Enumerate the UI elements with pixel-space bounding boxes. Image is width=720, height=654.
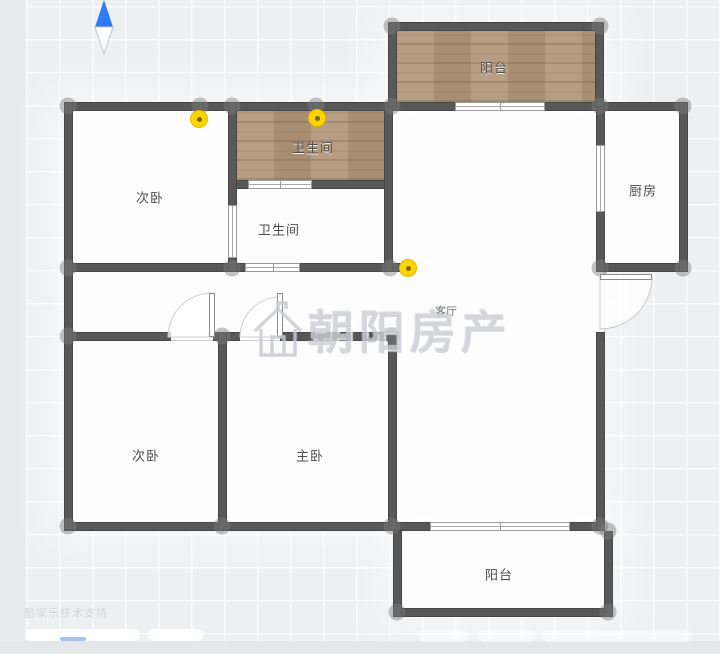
window-kitchen [596, 145, 605, 212]
bottom-panel-strip [0, 641, 720, 654]
wall-balcony-top-right [595, 22, 604, 107]
wall-living-right [596, 332, 605, 531]
door-bathroom-white [245, 263, 300, 272]
wall-bedroom-mid [218, 332, 227, 531]
room-label-bathroom-white: 卫生间 [258, 220, 300, 239]
wall-joint [384, 328, 401, 345]
bottom-toolbar-accent[interactable] [60, 637, 86, 641]
bottom-toolbar-chip[interactable] [542, 630, 692, 642]
wall-joint [384, 18, 401, 35]
wall-joint [214, 328, 231, 345]
wall-joint [214, 518, 231, 535]
room-label-bathroom-wood: 卫生间 [292, 138, 334, 157]
wall-joint [224, 260, 241, 277]
wall-joint [384, 518, 401, 535]
wall-joint [224, 98, 241, 115]
wall-joint [675, 98, 692, 115]
room-label-balcony-top: 阳台 [480, 58, 508, 77]
wall-bathroom-right [384, 102, 393, 272]
room-label-living-room: 客厅 [435, 303, 457, 319]
door-leaf-bedroom-bottom [209, 293, 215, 337]
door-bathroom-wood [248, 180, 312, 189]
wall-balcony-bottom [393, 608, 613, 617]
door-gap-master [240, 332, 280, 341]
window-balcony-top [455, 102, 545, 111]
door-leaf-master [277, 293, 283, 337]
wall-joint [60, 328, 77, 345]
wall-balcony-top-left [388, 22, 397, 107]
support-text: 酷家乐技术支持 [24, 605, 108, 621]
panorama-marker[interactable] [399, 259, 417, 277]
left-panel-strip [0, 0, 26, 654]
wall-balcony-top [388, 22, 604, 31]
room-label-balcony-bottom: 阳台 [485, 565, 513, 584]
window-balcony-bottom [430, 522, 570, 531]
door-bedroom-top [228, 205, 237, 258]
bottom-toolbar-chip[interactable] [418, 630, 468, 642]
panorama-marker[interactable] [190, 110, 208, 128]
bottom-toolbar-chip[interactable] [148, 629, 203, 641]
wall-left [64, 102, 73, 530]
wall-joint [60, 98, 77, 115]
wall-joint [600, 523, 617, 540]
wall-joint [60, 518, 77, 535]
wall-joint [592, 98, 609, 115]
wall-joint [592, 18, 609, 35]
room-label-master-bedroom: 主卧 [296, 446, 324, 465]
door-gap-entry [596, 272, 605, 332]
panorama-marker[interactable] [308, 109, 326, 127]
floorplan-canvas[interactable]: 阳台 卫生间 次卧 卫生间 厨房 客厅 次卧 主卧 阳台 朝阳房产 酷家乐技术支… [0, 0, 720, 654]
room-label-kitchen: 厨房 [629, 181, 657, 200]
wall-joint [382, 260, 399, 277]
door-gap-bedroom-bottom [171, 332, 213, 341]
wall-joint [600, 604, 617, 621]
room-label-bedroom-bottom: 次卧 [132, 446, 160, 465]
north-compass-icon [92, 0, 116, 56]
room-label-bedroom-top: 次卧 [136, 188, 164, 207]
wall-master-right [388, 332, 397, 531]
wall-joint [60, 260, 77, 277]
wall-joint [384, 98, 401, 115]
wall-hall-bottom [64, 332, 397, 341]
wall-joint [389, 604, 406, 621]
bottom-toolbar-chip[interactable] [478, 630, 536, 642]
wall-kitchen-right [679, 102, 688, 272]
wall-joint [675, 260, 692, 277]
door-leaf-entry [600, 274, 652, 280]
